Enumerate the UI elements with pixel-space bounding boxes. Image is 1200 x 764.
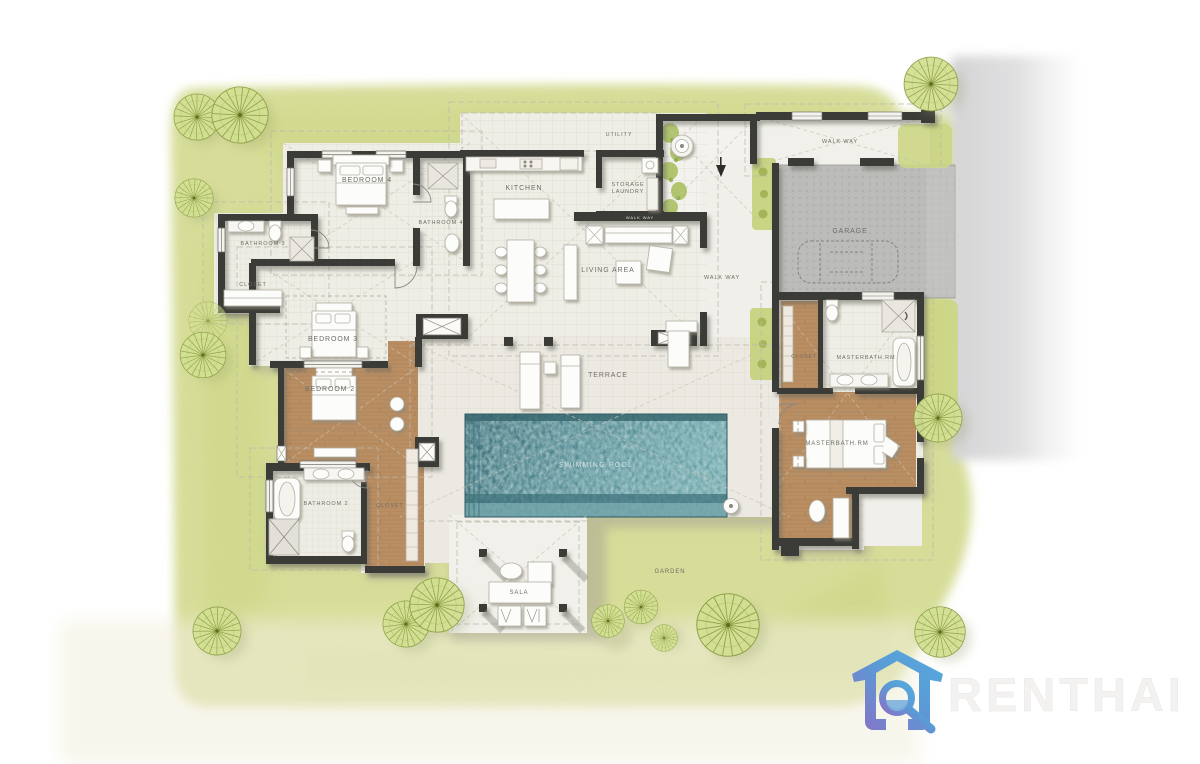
svg-text:UTILITY: UTILITY bbox=[606, 132, 633, 138]
svg-text:SALA: SALA bbox=[510, 590, 529, 596]
svg-text:MASTERBATH.RM: MASTERBATH.RM bbox=[837, 355, 896, 361]
svg-text:WALK WAY: WALK WAY bbox=[822, 139, 858, 145]
svg-text:WALK WAY: WALK WAY bbox=[704, 275, 740, 281]
svg-text:WALK WAY: WALK WAY bbox=[626, 215, 654, 220]
svg-text:BATHROOM 2: BATHROOM 2 bbox=[304, 501, 349, 507]
svg-text:CLOSET: CLOSET bbox=[791, 354, 816, 360]
svg-text:GARAGE: GARAGE bbox=[832, 228, 867, 235]
svg-text:TERRACE: TERRACE bbox=[588, 372, 628, 379]
svg-text:STORAGE: STORAGE bbox=[611, 182, 644, 188]
svg-text:MASTERBATH.RM: MASTERBATH.RM bbox=[805, 441, 868, 447]
svg-text:BATHROOM 3: BATHROOM 3 bbox=[241, 241, 286, 247]
svg-text:CLOSET: CLOSET bbox=[239, 282, 266, 288]
svg-text:SWIMMING POOL: SWIMMING POOL bbox=[559, 462, 633, 469]
svg-text:BATHROOM 4: BATHROOM 4 bbox=[419, 220, 464, 226]
svg-text:KITCHEN: KITCHEN bbox=[505, 185, 542, 192]
svg-text:RENTHAI: RENTHAI bbox=[948, 668, 1185, 721]
svg-text:LIVING AREA: LIVING AREA bbox=[581, 267, 634, 274]
svg-text:BEDROOM 2: BEDROOM 2 bbox=[305, 386, 355, 393]
svg-text:BEDROOM 4: BEDROOM 4 bbox=[342, 177, 392, 184]
svg-text:BEDROOM 3: BEDROOM 3 bbox=[308, 336, 358, 343]
svg-text:GARDEN: GARDEN bbox=[654, 569, 685, 575]
svg-text:CLOSET: CLOSET bbox=[376, 503, 403, 509]
svg-text:LAUNDRY: LAUNDRY bbox=[612, 189, 644, 195]
